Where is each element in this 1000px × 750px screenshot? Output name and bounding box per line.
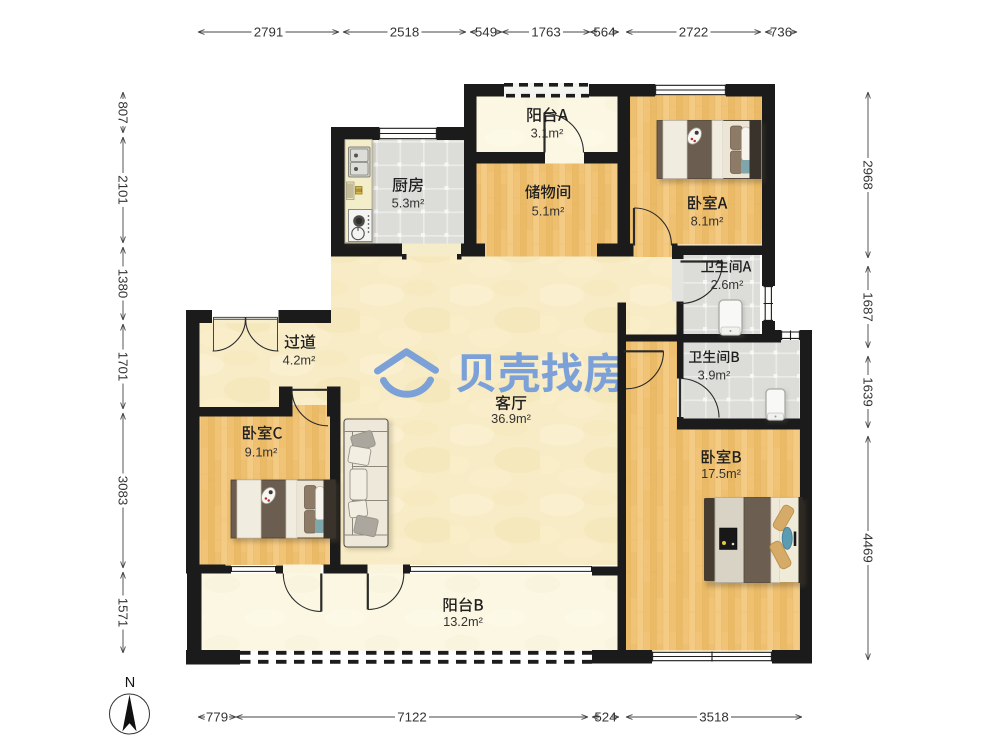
svg-text:3518: 3518 (699, 709, 729, 724)
svg-text:2.6m²: 2.6m² (711, 277, 744, 292)
svg-text:17.5m²: 17.5m² (701, 466, 742, 481)
svg-text:4469: 4469 (861, 533, 876, 563)
svg-text:36.9m²: 36.9m² (491, 411, 532, 426)
svg-text:1687: 1687 (861, 292, 876, 322)
svg-text:4.2m²: 4.2m² (283, 353, 316, 368)
svg-text:1639: 1639 (861, 377, 876, 407)
svg-text:2968: 2968 (861, 160, 876, 190)
svg-text:N: N (125, 675, 135, 691)
svg-text:1380: 1380 (116, 269, 131, 299)
svg-text:2722: 2722 (679, 24, 709, 39)
svg-text:5.3m²: 5.3m² (392, 196, 425, 211)
svg-text:2518: 2518 (390, 24, 420, 39)
svg-text:5.1m²: 5.1m² (532, 204, 565, 219)
svg-text:3083: 3083 (116, 476, 131, 506)
svg-text:2101: 2101 (116, 175, 131, 205)
svg-text:564: 564 (593, 24, 615, 39)
svg-text:736: 736 (770, 24, 792, 39)
svg-text:3.9m²: 3.9m² (698, 368, 731, 383)
svg-text:807: 807 (116, 101, 131, 123)
svg-text:779: 779 (206, 709, 228, 724)
svg-text:1763: 1763 (531, 24, 561, 39)
svg-text:524: 524 (594, 709, 616, 724)
svg-text:3.1m²: 3.1m² (531, 126, 564, 141)
svg-text:8.1m²: 8.1m² (691, 214, 724, 229)
svg-text:1701: 1701 (116, 352, 131, 382)
svg-text:2791: 2791 (254, 24, 284, 39)
svg-text:549: 549 (475, 24, 497, 39)
svg-text:13.2m²: 13.2m² (443, 614, 484, 629)
svg-text:1571: 1571 (116, 598, 131, 628)
svg-text:7122: 7122 (397, 709, 427, 724)
svg-text:9.1m²: 9.1m² (245, 445, 278, 460)
